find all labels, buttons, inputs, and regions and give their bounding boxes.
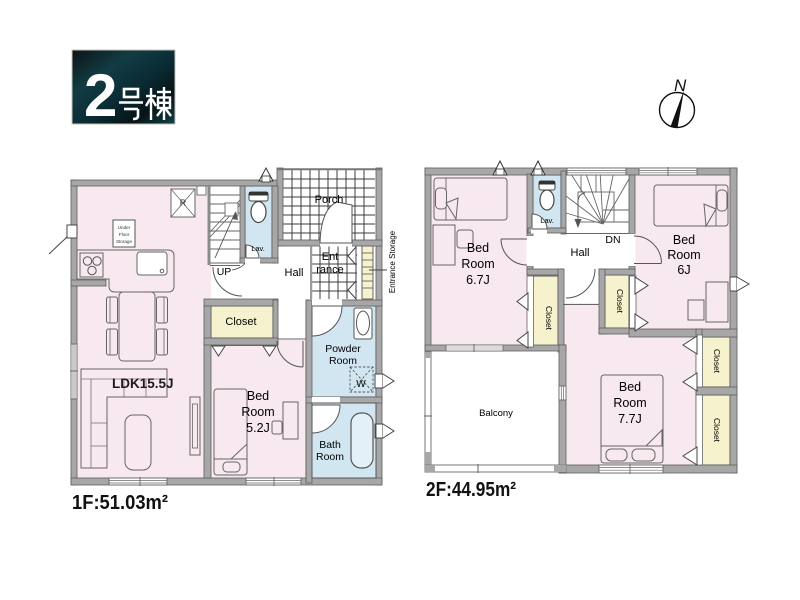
svg-text:Entrance Storage: Entrance Storage <box>388 230 397 293</box>
svg-text:2: 2 <box>84 62 117 129</box>
svg-text:Room: Room <box>316 451 344 463</box>
svg-text:Bed: Bed <box>673 233 695 247</box>
svg-text:Lav.: Lav. <box>540 216 554 225</box>
svg-text:Storage: Storage <box>116 239 133 244</box>
svg-text:Lav.: Lav. <box>251 244 265 253</box>
svg-text:Closet: Closet <box>712 418 722 443</box>
svg-text:Bed: Bed <box>247 389 269 403</box>
svg-text:N: N <box>674 76 687 95</box>
svg-text:Bed: Bed <box>467 241 489 255</box>
svg-text:1F:51.03m²: 1F:51.03m² <box>72 492 168 514</box>
svg-text:Closet: Closet <box>712 349 722 374</box>
svg-text:Hall: Hall <box>571 247 590 259</box>
svg-text:LDK15.5J: LDK15.5J <box>112 376 174 391</box>
svg-text:6.7J: 6.7J <box>466 273 490 287</box>
svg-text:Ent: Ent <box>322 251 339 263</box>
svg-text:Balcony: Balcony <box>479 408 513 419</box>
svg-text:Under: Under <box>118 225 131 230</box>
svg-text:UP: UP <box>217 266 232 278</box>
svg-text:7.7J: 7.7J <box>618 412 642 426</box>
svg-text:R: R <box>180 198 187 208</box>
svg-text:2F:44.95m²: 2F:44.95m² <box>426 479 516 501</box>
svg-text:DN: DN <box>605 234 620 246</box>
svg-text:Room: Room <box>329 355 357 367</box>
svg-text:6J: 6J <box>677 263 690 277</box>
svg-text:Bath: Bath <box>319 439 341 451</box>
svg-text:Closet: Closet <box>615 289 625 314</box>
svg-text:Room: Room <box>241 405 274 419</box>
svg-text:Powder: Powder <box>325 343 361 355</box>
svg-text:Room: Room <box>613 396 646 410</box>
svg-text:Room: Room <box>461 257 494 271</box>
svg-text:Hall: Hall <box>285 267 304 279</box>
svg-text:Floor: Floor <box>119 232 130 237</box>
svg-text:Room: Room <box>667 248 700 262</box>
svg-text:rance: rance <box>316 264 344 276</box>
svg-text:W: W <box>356 379 366 390</box>
svg-text:Closet: Closet <box>225 316 256 328</box>
svg-text:Closet: Closet <box>544 306 554 331</box>
svg-text:5.2J: 5.2J <box>246 421 270 435</box>
svg-text:Porch: Porch <box>315 194 344 206</box>
svg-text:Bed: Bed <box>619 380 641 394</box>
